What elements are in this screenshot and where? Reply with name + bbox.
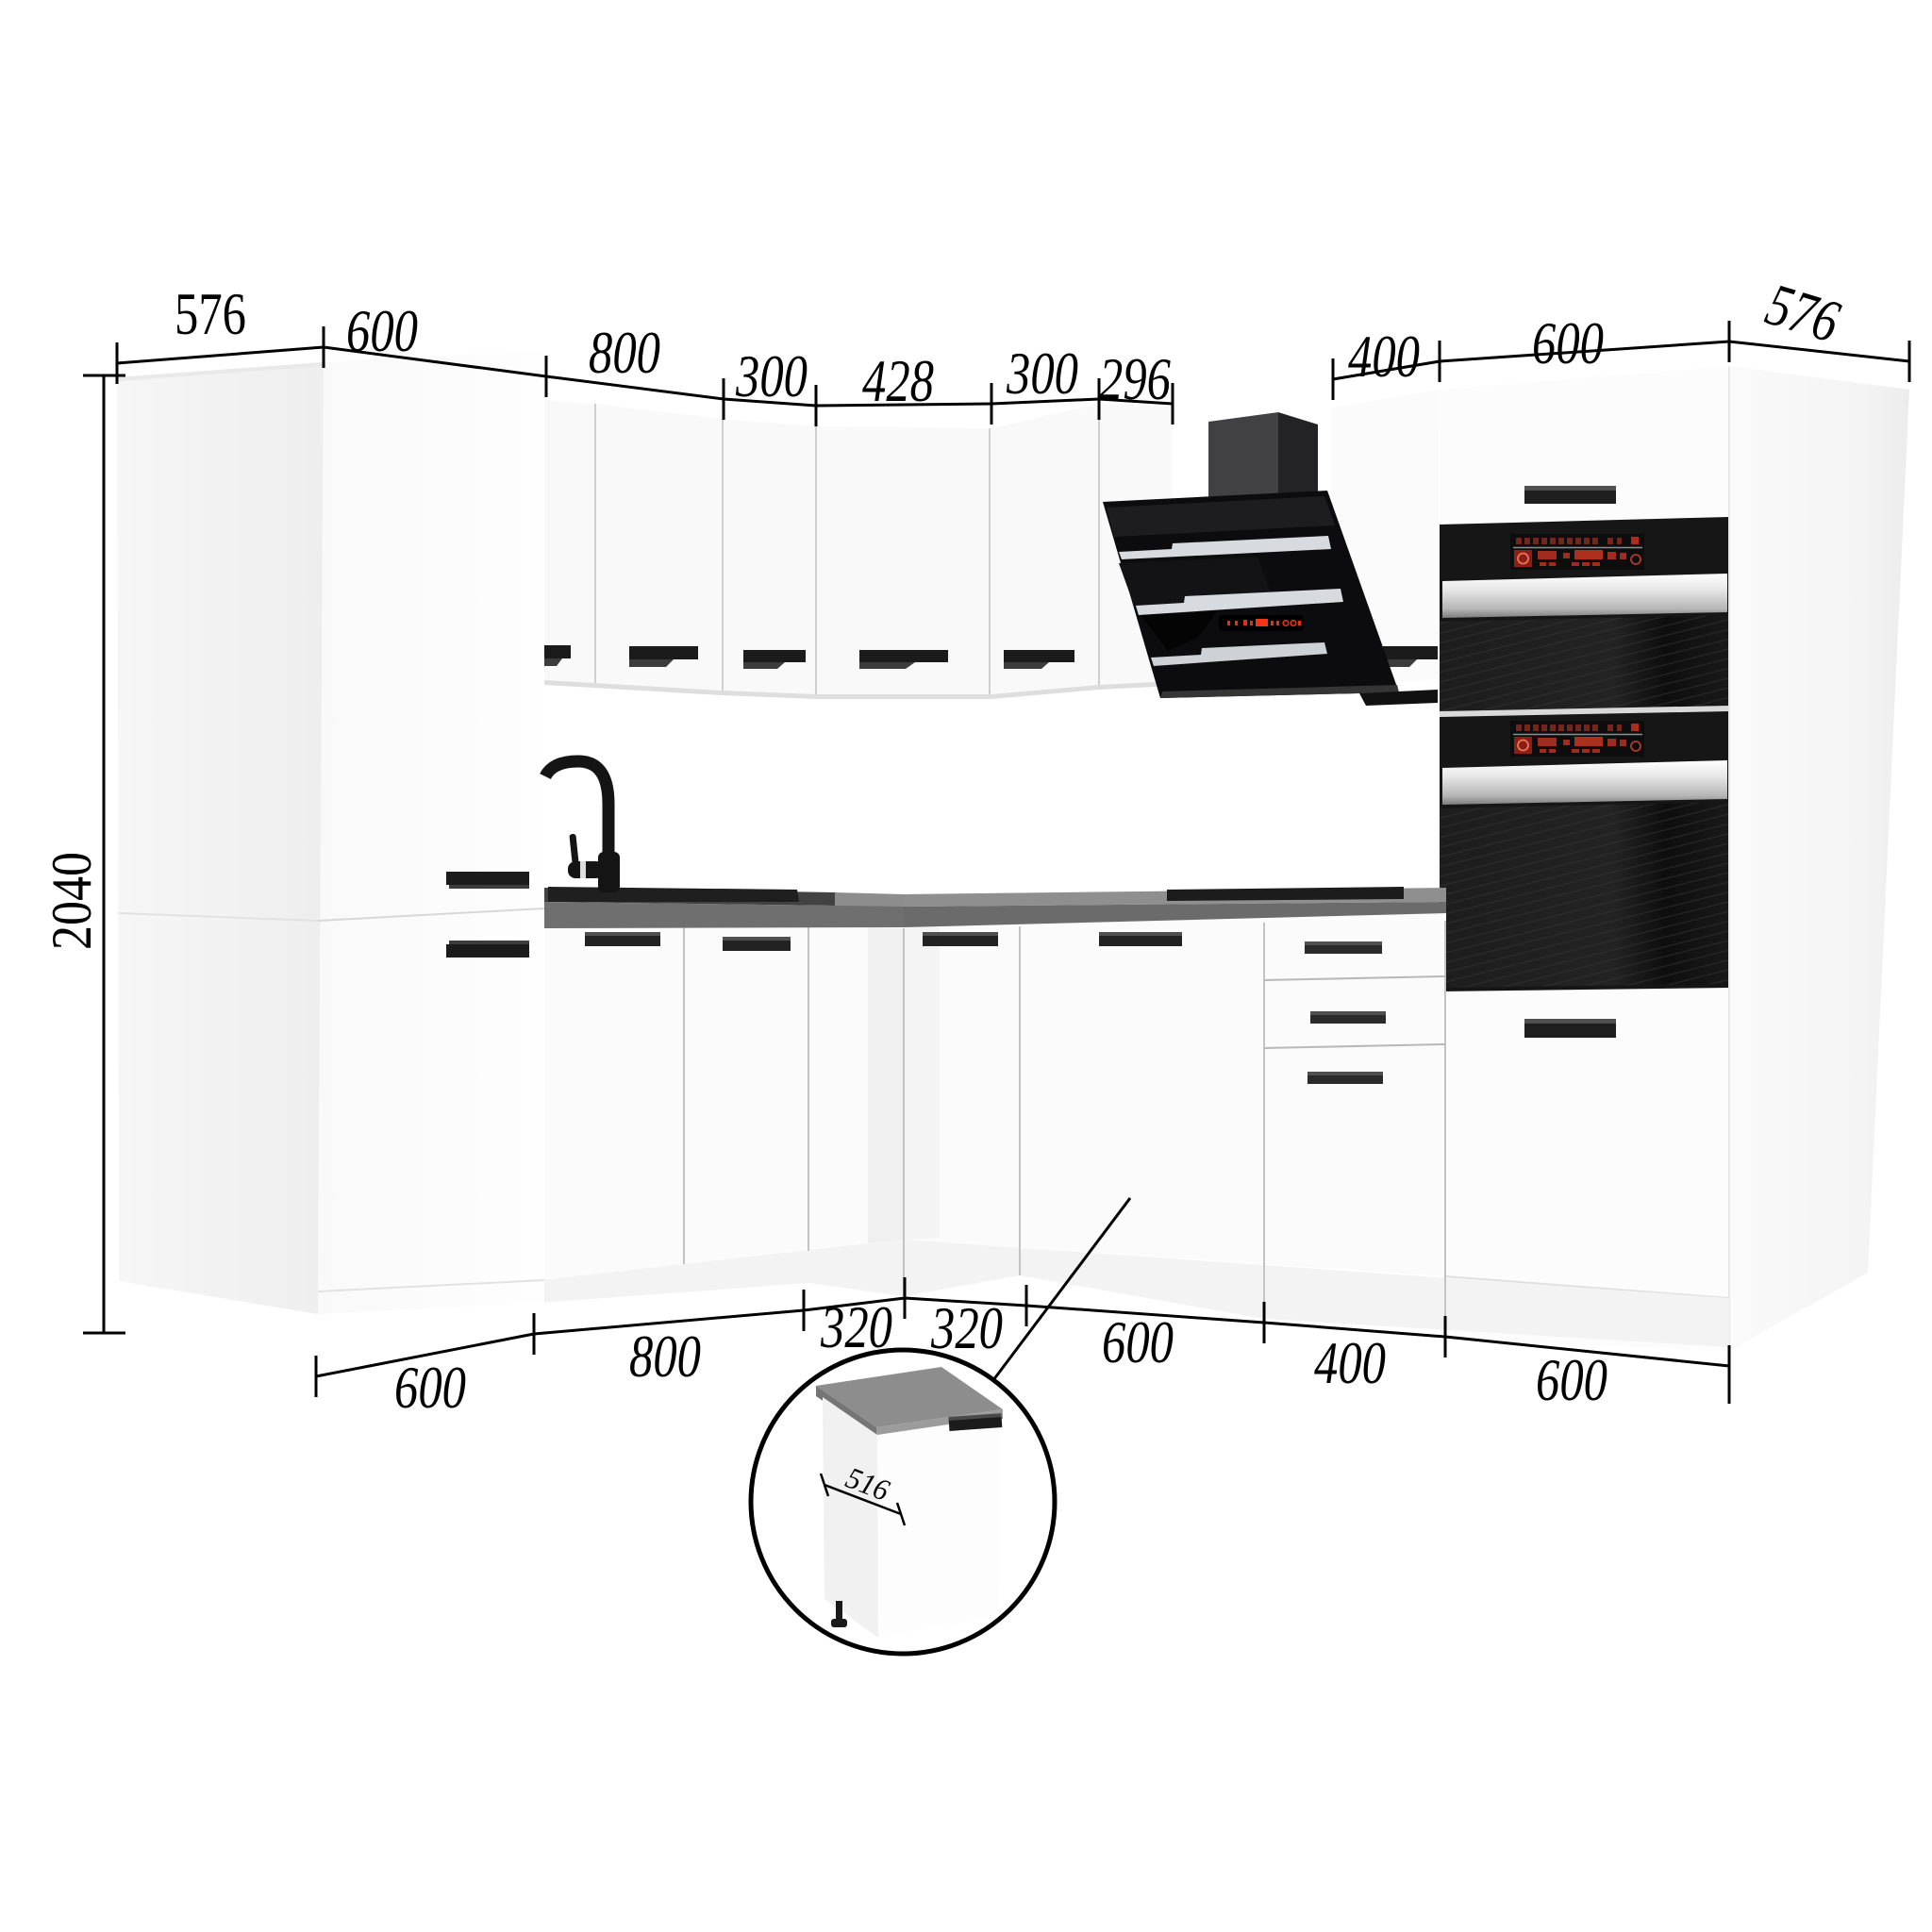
svg-text:400: 400 bbox=[1314, 1329, 1386, 1396]
svg-text:800: 800 bbox=[589, 319, 660, 386]
svg-text:2040: 2040 bbox=[41, 852, 103, 950]
svg-text:400: 400 bbox=[1348, 323, 1420, 390]
svg-text:300: 300 bbox=[735, 342, 808, 409]
svg-text:576: 576 bbox=[175, 280, 246, 347]
svg-text:428: 428 bbox=[862, 347, 934, 414]
svg-text:600: 600 bbox=[1102, 1308, 1174, 1375]
svg-text:320: 320 bbox=[930, 1294, 1003, 1361]
svg-text:600: 600 bbox=[346, 297, 418, 364]
svg-text:600: 600 bbox=[1532, 309, 1604, 376]
svg-text:296: 296 bbox=[1099, 345, 1171, 412]
svg-text:800: 800 bbox=[629, 1323, 701, 1390]
svg-text:300: 300 bbox=[1006, 340, 1078, 407]
svg-text:600: 600 bbox=[1536, 1346, 1607, 1413]
svg-text:600: 600 bbox=[394, 1354, 466, 1421]
